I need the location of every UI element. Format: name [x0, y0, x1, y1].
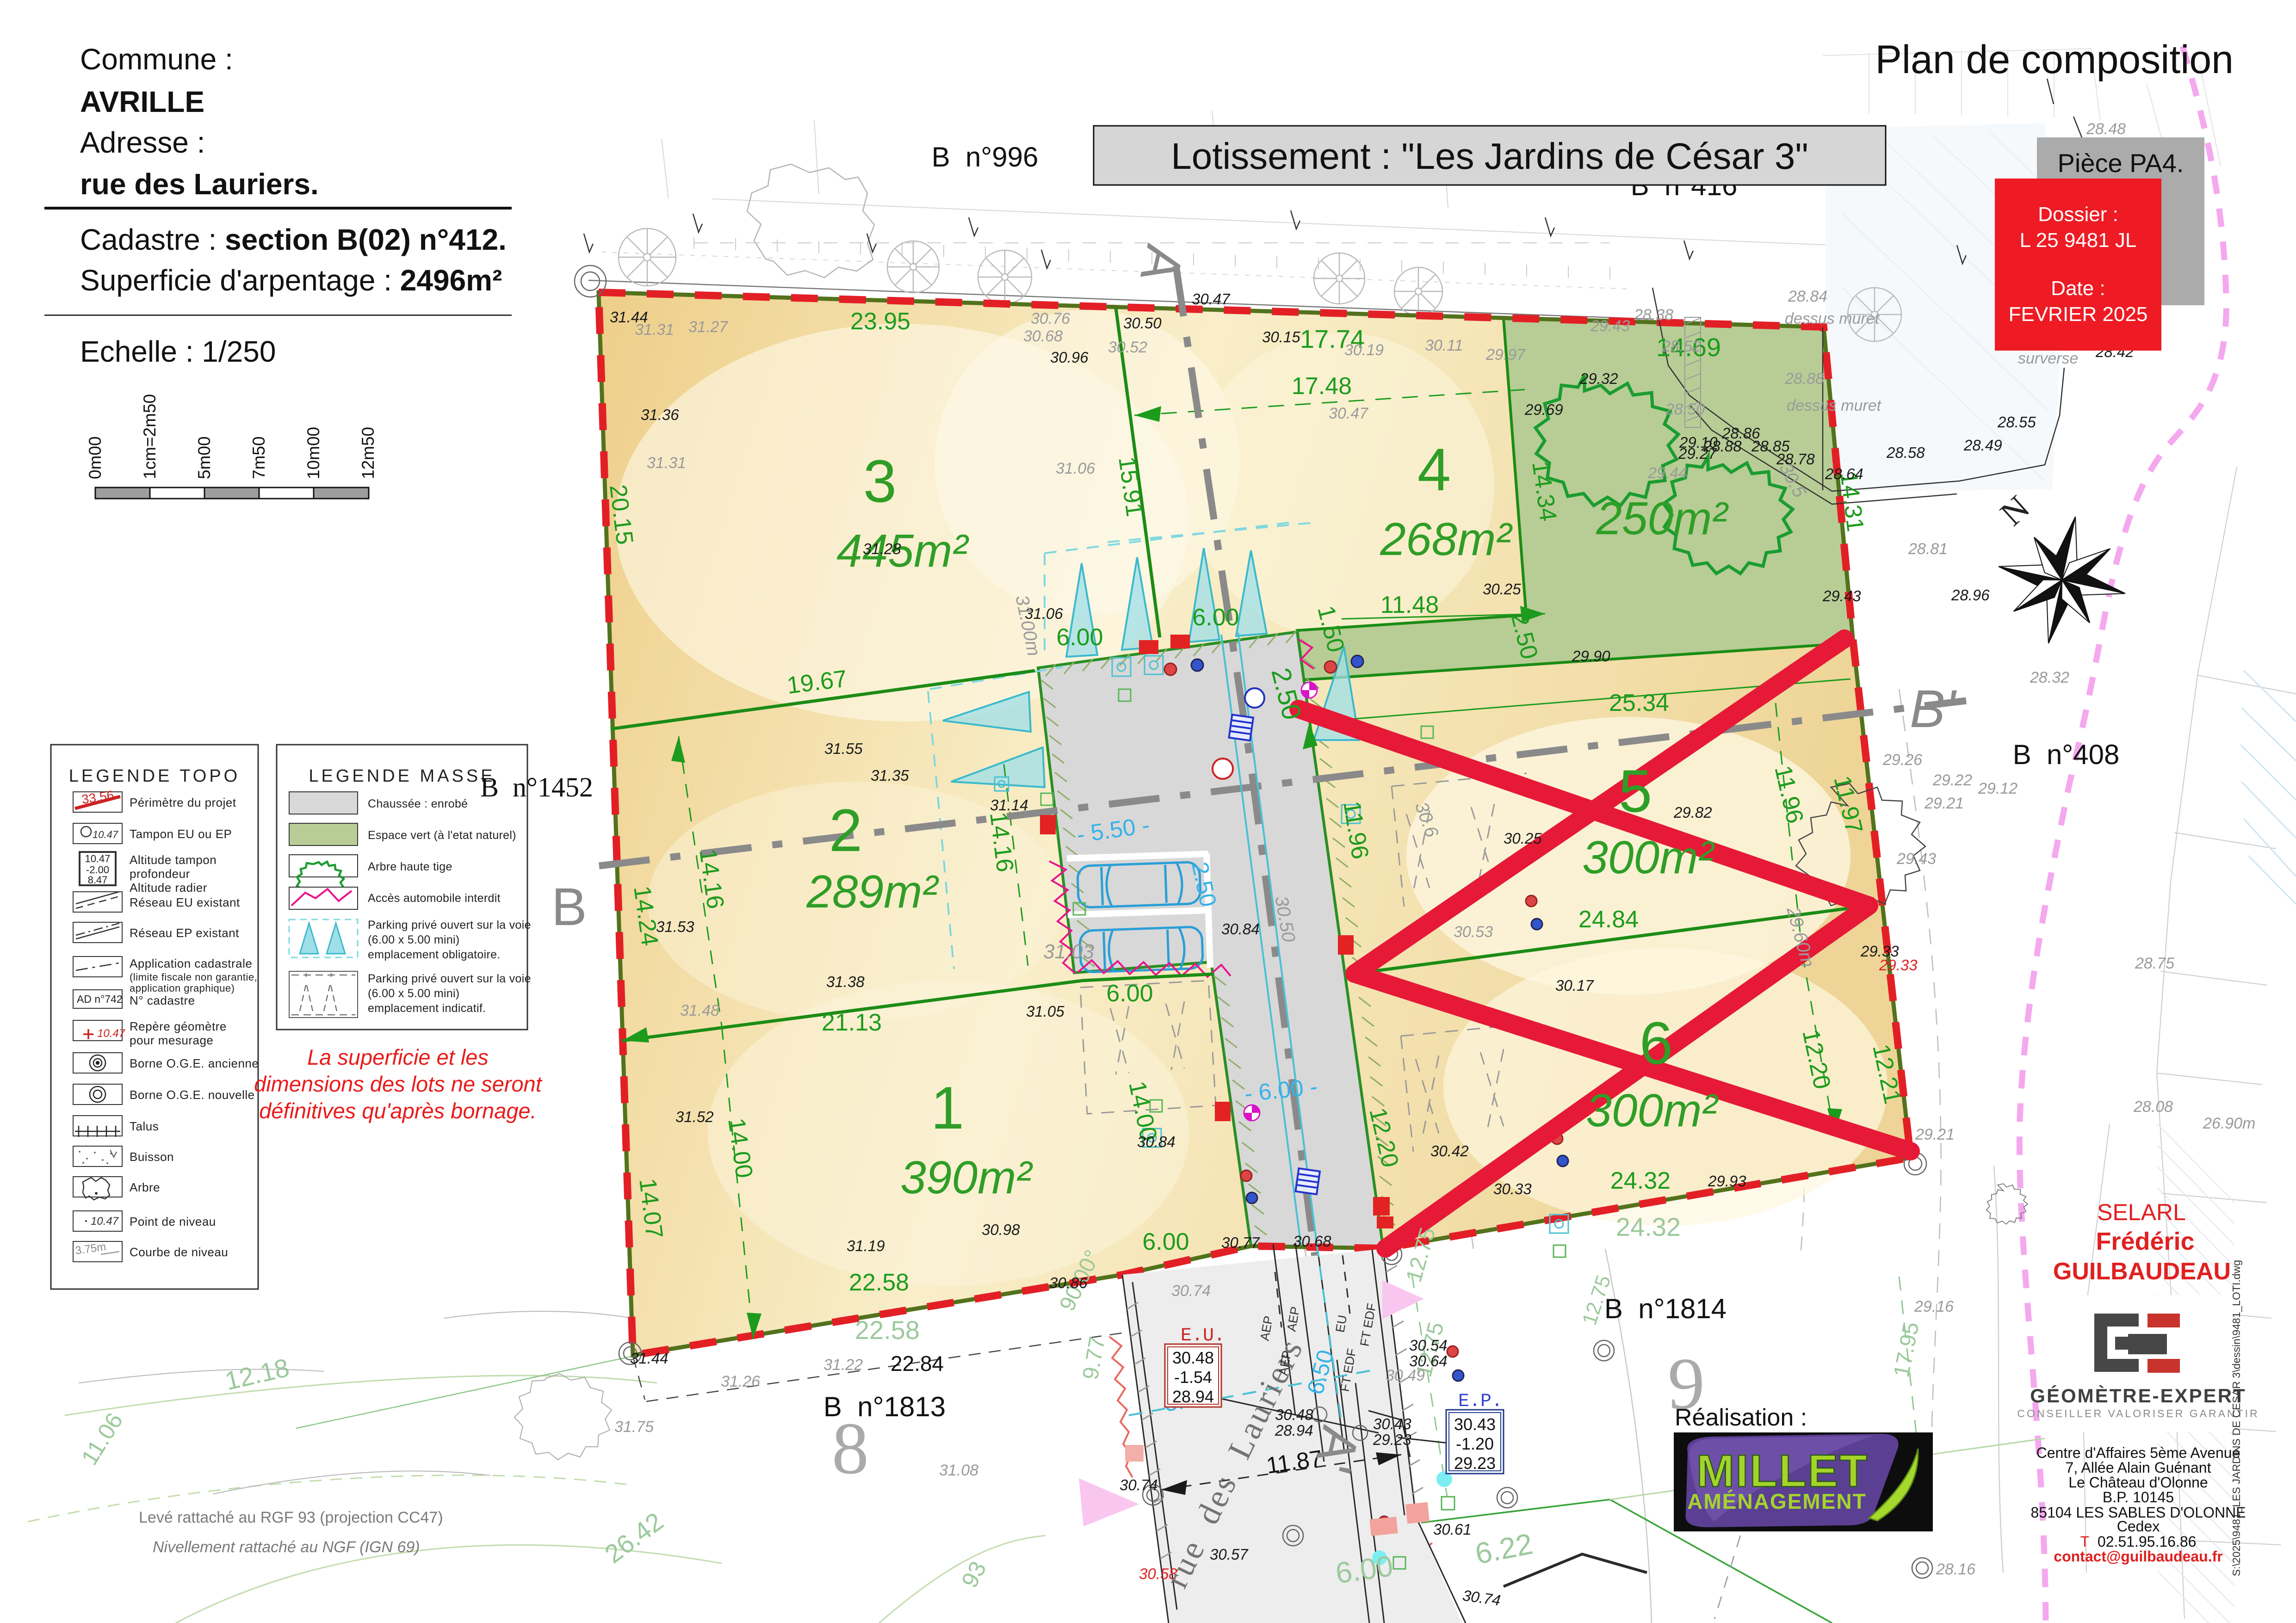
svg-text:31.06: 31.06 — [1056, 460, 1095, 477]
svg-text:AVRILLE: AVRILLE — [80, 85, 204, 118]
svg-text:application graphique): application graphique) — [130, 982, 235, 994]
svg-text:GÉOMÈTRE-EXPERT: GÉOMÈTRE-EXPERT — [2030, 1385, 2246, 1407]
svg-text:25.34: 25.34 — [1609, 690, 1669, 716]
svg-text:30.42: 30.42 — [1430, 1142, 1469, 1160]
svg-text:Périmètre du projet: Périmètre du projet — [130, 796, 236, 809]
svg-text:28.84: 28.84 — [1788, 288, 1827, 305]
svg-text:29.44: 29.44 — [1647, 464, 1687, 482]
svg-text:26.90m: 26.90m — [2203, 1115, 2255, 1132]
svg-text:1cm=2m50: 1cm=2m50 — [140, 394, 159, 479]
svg-text:31.48: 31.48 — [680, 1002, 719, 1019]
svg-text:29.21: 29.21 — [1915, 1126, 1955, 1143]
svg-text:30.77: 30.77 — [1221, 1234, 1260, 1251]
svg-text:AD n°742: AD n°742 — [77, 993, 123, 1005]
svg-text:dimensions des lots ne seront: dimensions des lots ne seront — [254, 1072, 543, 1096]
svg-text:(6.00 x 5.00 mini): (6.00 x 5.00 mini) — [368, 987, 460, 1000]
svg-text:Talus: Talus — [130, 1119, 159, 1133]
svg-text:28.81: 28.81 — [1908, 540, 1948, 558]
svg-text:31.52: 31.52 — [675, 1108, 714, 1125]
svg-text:268m²: 268m² — [1380, 513, 1513, 565]
svg-text:29.93: 29.93 — [1708, 1173, 1746, 1190]
svg-text:AMÉNAGEMENT: AMÉNAGEMENT — [1687, 1489, 1866, 1513]
svg-text:29.23: 29.23 — [1373, 1431, 1411, 1448]
svg-text:10.47: 10.47 — [91, 1215, 119, 1228]
svg-text:FEVRIER 2025: FEVRIER 2025 — [2009, 303, 2148, 326]
svg-text:31.35: 31.35 — [871, 767, 909, 784]
svg-text:Pièce PA4.: Pièce PA4. — [2058, 148, 2184, 178]
svg-text:17.48: 17.48 — [1292, 373, 1352, 400]
svg-text:Point de niveau: Point de niveau — [130, 1215, 216, 1228]
svg-text:30.19: 30.19 — [1344, 341, 1384, 359]
svg-text:Tampon EU ou EP: Tampon EU ou EP — [130, 827, 232, 841]
svg-text:30.52: 30.52 — [1108, 339, 1147, 356]
svg-text:28.58: 28.58 — [1886, 444, 1925, 461]
svg-text:29.69: 29.69 — [1524, 401, 1563, 418]
svg-text:30.50: 30.50 — [1123, 315, 1162, 332]
svg-text:Altitude radier: Altitude radier — [130, 881, 207, 895]
svg-text:31.53: 31.53 — [656, 918, 694, 935]
svg-text:28.48: 28.48 — [2086, 120, 2126, 138]
svg-text:B': B' — [1910, 679, 1957, 739]
svg-text:390m²: 390m² — [900, 1152, 1033, 1203]
svg-text:30.25: 30.25 — [1483, 580, 1521, 598]
svg-text:8.47: 8.47 — [88, 874, 108, 886]
svg-text:29.43: 29.43 — [1822, 587, 1861, 605]
svg-text:289m²: 289m² — [806, 866, 939, 918]
svg-text:28.55: 28.55 — [1997, 413, 2036, 431]
svg-text:Cadastre : section B(02) n°412: Cadastre : section B(02) n°412. — [80, 223, 507, 256]
svg-text:31.03: 31.03 — [1043, 940, 1095, 963]
svg-text:28.88: 28.88 — [1784, 370, 1824, 388]
svg-text:SELARL: SELARL — [2097, 1199, 2186, 1225]
svg-text:Application cadastrale: Application cadastrale — [130, 957, 252, 970]
svg-text:Parking privé ouvert sur la vo: Parking privé ouvert sur la voie — [368, 972, 531, 985]
svg-text:11.48: 11.48 — [1380, 592, 1439, 618]
svg-text:Arbre haute tige: Arbre haute tige — [368, 860, 452, 873]
svg-text:Dossier :: Dossier : — [2038, 203, 2118, 226]
svg-text:La superficie et les: La superficie et les — [307, 1045, 489, 1069]
svg-text:30.98: 30.98 — [982, 1221, 1020, 1238]
svg-text:GUILBAUDEAU: GUILBAUDEAU — [2053, 1258, 2231, 1285]
svg-text:Courbe de niveau: Courbe de niveau — [130, 1245, 228, 1259]
svg-text:24.32: 24.32 — [1616, 1212, 1681, 1241]
svg-text:29.21: 29.21 — [1924, 795, 1964, 812]
svg-text:31.05: 31.05 — [1026, 1003, 1064, 1020]
svg-text:30.25: 30.25 — [1504, 830, 1542, 847]
svg-text:22.58: 22.58 — [855, 1315, 920, 1345]
svg-text:Plan de composition: Plan de composition — [1875, 37, 2234, 82]
svg-text:6.00: 6.00 — [1142, 1228, 1189, 1255]
svg-text:31.27: 31.27 — [688, 318, 728, 336]
svg-text:T 02.51.95.16.86: T 02.51.95.16.86 — [2080, 1533, 2197, 1550]
svg-text:29.43: 29.43 — [1896, 850, 1936, 868]
svg-text:21.13: 21.13 — [822, 1009, 882, 1036]
svg-text:Altitude tampon: Altitude tampon — [130, 853, 217, 867]
svg-text:B.P. 10145: B.P. 10145 — [2103, 1489, 2174, 1506]
svg-text:22.84: 22.84 — [891, 1351, 944, 1376]
svg-text:Borne O.G.E. nouvelle: Borne O.G.E. nouvelle — [130, 1088, 255, 1102]
svg-text:30.15: 30.15 — [1262, 328, 1300, 346]
svg-text:30.84: 30.84 — [1137, 1133, 1176, 1150]
svg-text:29.90: 29.90 — [1572, 648, 1610, 665]
svg-text:30.17: 30.17 — [1555, 977, 1594, 994]
svg-text:Chaussée : enrobé: Chaussée : enrobé — [368, 797, 468, 810]
svg-text:30.54: 30.54 — [1409, 1337, 1448, 1354]
svg-text:Repère géomètre: Repère géomètre — [130, 1019, 227, 1033]
svg-text:4: 4 — [1417, 436, 1451, 503]
svg-text:Accès automobile interdit: Accès automobile interdit — [368, 892, 501, 905]
svg-text:30.68: 30.68 — [1023, 327, 1063, 345]
svg-text:8: 8 — [832, 1407, 869, 1489]
svg-text:contact@guilbaudeau.fr: contact@guilbaudeau.fr — [2054, 1548, 2222, 1565]
svg-text:E.P.: E.P. — [1458, 1391, 1503, 1412]
svg-text:31.75: 31.75 — [614, 1418, 654, 1436]
svg-text:30.43: 30.43 — [1454, 1415, 1496, 1434]
svg-text:30.61: 30.61 — [1433, 1521, 1472, 1538]
svg-text:-1.54: -1.54 — [1174, 1368, 1212, 1387]
svg-text:30.53: 30.53 — [1454, 923, 1493, 941]
svg-text:30.76: 30.76 — [1031, 310, 1070, 327]
svg-text:Levé rattaché au RGF 93 (proje: Levé rattaché au RGF 93 (projection CC47… — [139, 1509, 443, 1526]
svg-text:31.14: 31.14 — [990, 796, 1028, 814]
svg-text:6.00: 6.00 — [1106, 980, 1153, 1007]
svg-text:Arbre: Arbre — [130, 1180, 160, 1194]
svg-text:(limite fiscale non garantie,: (limite fiscale non garantie, — [130, 971, 257, 983]
svg-text:30.11: 30.11 — [1425, 337, 1463, 354]
svg-text:Réseau EP existant: Réseau EP existant — [130, 926, 239, 940]
svg-text:emplacement indicatif.: emplacement indicatif. — [368, 1002, 486, 1015]
svg-text:445m²: 445m² — [836, 525, 969, 577]
svg-text:28.75: 28.75 — [2135, 955, 2174, 972]
svg-text:29.27: 29.27 — [1678, 445, 1717, 462]
svg-text:30.96: 30.96 — [1050, 349, 1089, 366]
svg-text:28.85: 28.85 — [1751, 438, 1790, 455]
svg-text:6.00: 6.00 — [1056, 624, 1103, 651]
svg-text:23.95: 23.95 — [850, 308, 910, 335]
svg-text:S:\2025\9481_LES JARDINS DE CE: S:\2025\9481_LES JARDINS DE CESAR 3\dess… — [2230, 1260, 2242, 1576]
svg-text:Lotissement : "Les Jardins de: Lotissement : "Les Jardins de César 3" — [1171, 136, 1808, 177]
svg-text:28.16: 28.16 — [1936, 1561, 1975, 1578]
svg-text:29.33: 29.33 — [1879, 957, 1918, 974]
svg-text:12m50: 12m50 — [359, 427, 378, 479]
svg-text:N° cadastre: N° cadastre — [130, 994, 195, 1007]
svg-text:Date :: Date : — [2051, 277, 2105, 300]
svg-text:Adresse :: Adresse : — [80, 126, 205, 159]
svg-text:E.U.: E.U. — [1181, 1326, 1225, 1346]
svg-text:28.64: 28.64 — [1825, 465, 1863, 482]
svg-text:30.47: 30.47 — [1192, 290, 1231, 308]
svg-text:EU: EU — [1333, 1314, 1349, 1333]
svg-text:31.22: 31.22 — [823, 1356, 863, 1374]
svg-text:22.58: 22.58 — [849, 1269, 909, 1296]
svg-text:B n°408: B n°408 — [2013, 739, 2120, 770]
svg-text:10.47: 10.47 — [93, 829, 118, 840]
svg-text:29.26: 29.26 — [1882, 751, 1922, 769]
svg-text:B n°1814: B n°1814 — [1604, 1293, 1727, 1324]
svg-text:31.19: 31.19 — [847, 1237, 885, 1254]
svg-text:2: 2 — [829, 796, 862, 864]
svg-text:300m²: 300m² — [1586, 1085, 1719, 1136]
svg-text:Buisson: Buisson — [130, 1150, 174, 1164]
svg-text:Parking privé ouvert sur la vo: Parking privé ouvert sur la voie — [368, 919, 531, 932]
svg-text:29.22: 29.22 — [1932, 771, 1972, 789]
svg-text:Superficie d'arpentage : 2496m: Superficie d'arpentage : 2496m² — [80, 264, 502, 297]
svg-text:29.16: 29.16 — [1914, 1298, 1954, 1315]
svg-text:Borne O.G.E. ancienne: Borne O.G.E. ancienne — [130, 1056, 259, 1070]
svg-text:7, Allée Alain Guénant: 7, Allée Alain Guénant — [2066, 1459, 2211, 1476]
svg-text:30.49: 30.49 — [1386, 1367, 1425, 1384]
svg-text:dessus muret: dessus muret — [1785, 310, 1880, 327]
svg-text:Centre d'Affaires 5ème Avenue: Centre d'Affaires 5ème Avenue — [2036, 1444, 2240, 1461]
svg-text:10.47: 10.47 — [97, 1027, 126, 1040]
svg-text:Réalisation :: Réalisation : — [1675, 1404, 1807, 1431]
svg-text:B: B — [551, 877, 587, 937]
svg-text:10m00: 10m00 — [304, 427, 323, 479]
svg-text:Espace vert (à l'etat naturel): Espace vert (à l'etat naturel) — [368, 829, 516, 842]
svg-text:dessus muret: dessus muret — [1787, 397, 1882, 414]
svg-text:B n°1452: B n°1452 — [480, 772, 593, 802]
svg-text:10.47: 10.47 — [85, 853, 110, 864]
svg-text:Echelle : 1/250: Echelle : 1/250 — [80, 335, 276, 368]
svg-text:29.23: 29.23 — [1454, 1454, 1496, 1473]
svg-text:250m²: 250m² — [1596, 493, 1729, 544]
svg-text:28.32: 28.32 — [2030, 669, 2069, 686]
svg-text:6.00: 6.00 — [1192, 604, 1239, 631]
svg-text:6: 6 — [1640, 1009, 1673, 1077]
svg-text:surverse: surverse — [2018, 350, 2078, 367]
svg-text:définitives qu'après bornage.: définitives qu'après bornage. — [259, 1098, 536, 1123]
svg-text:LEGENDE MASSE: LEGENDE MASSE — [309, 766, 495, 786]
svg-text:Le Château d'Olonne: Le Château d'Olonne — [2068, 1474, 2208, 1491]
svg-text:29.32: 29.32 — [1579, 370, 1618, 387]
svg-text:pour mesurage: pour mesurage — [130, 1033, 213, 1047]
svg-text:Nivellement rattaché au NGF (I: Nivellement rattaché au NGF (IGN 69) — [153, 1538, 420, 1556]
svg-text:28.52: 28.52 — [1661, 338, 1701, 355]
svg-text:29.97: 29.97 — [1485, 346, 1526, 364]
svg-text:30.47: 30.47 — [1329, 405, 1368, 422]
svg-text:300m²: 300m² — [1582, 832, 1715, 883]
svg-text:Frédéric: Frédéric — [2096, 1228, 2194, 1255]
svg-text:30.68: 30.68 — [1293, 1233, 1331, 1250]
svg-text:-1.20: -1.20 — [1456, 1434, 1494, 1453]
svg-text:31.28: 31.28 — [863, 540, 901, 557]
svg-text:30.43: 30.43 — [1373, 1415, 1411, 1432]
svg-text:28.94: 28.94 — [1172, 1387, 1214, 1406]
svg-text:7m50: 7m50 — [249, 436, 268, 479]
svg-text:LEGENDE TOPO: LEGENDE TOPO — [69, 766, 240, 786]
svg-text:29.12: 29.12 — [1978, 780, 2018, 797]
svg-text:31.36: 31.36 — [641, 406, 679, 423]
svg-text:31.31: 31.31 — [635, 321, 674, 339]
svg-text:30.33: 30.33 — [1493, 1180, 1532, 1197]
svg-text:0m00: 0m00 — [86, 436, 105, 479]
svg-text:31.26: 31.26 — [721, 1373, 760, 1390]
svg-text:29.43: 29.43 — [1590, 317, 1630, 335]
svg-text:30.57: 30.57 — [1210, 1546, 1249, 1563]
svg-text:31.55: 31.55 — [824, 740, 863, 757]
svg-text:rue des Lauriers.: rue des Lauriers. — [80, 167, 319, 201]
svg-text:28.94: 28.94 — [1275, 1422, 1313, 1439]
svg-text:28.08: 28.08 — [2133, 1098, 2173, 1116]
svg-text:5: 5 — [1619, 757, 1652, 825]
svg-text:L 25 9481 JL: L 25 9481 JL — [2020, 229, 2137, 252]
svg-text:B n°996: B n°996 — [932, 142, 1039, 173]
svg-text:Réseau EU existant: Réseau EU existant — [130, 895, 240, 909]
svg-text:24.32: 24.32 — [1610, 1167, 1671, 1194]
svg-text:Commune :: Commune : — [80, 43, 233, 76]
svg-text:Cedex: Cedex — [2117, 1518, 2160, 1535]
svg-text:30.74: 30.74 — [1120, 1476, 1158, 1493]
svg-text:31.38: 31.38 — [826, 973, 865, 990]
svg-text:CONSEILLER VALORISER GARANTIR: CONSEILLER VALORISER GARANTIR — [2017, 1407, 2259, 1419]
svg-text:30.48: 30.48 — [1172, 1348, 1214, 1367]
svg-text:31.31: 31.31 — [647, 454, 686, 472]
svg-text:(6.00 x 5.00 mini): (6.00 x 5.00 mini) — [368, 933, 460, 946]
svg-text:3: 3 — [863, 447, 897, 515]
svg-text:30.86: 30.86 — [1049, 1274, 1088, 1291]
svg-text:MILLET: MILLET — [1696, 1445, 1869, 1496]
svg-text:30.74: 30.74 — [1171, 1282, 1211, 1300]
svg-text:5m00: 5m00 — [195, 436, 214, 479]
svg-text:profondeur: profondeur — [130, 867, 190, 881]
svg-text:30.84: 30.84 — [1221, 920, 1260, 938]
svg-text:emplacement obligatoire.: emplacement obligatoire. — [368, 948, 501, 961]
svg-text:31.44: 31.44 — [630, 1350, 668, 1367]
svg-text:28.96: 28.96 — [1951, 586, 1990, 604]
svg-text:28.38: 28.38 — [1634, 306, 1673, 324]
svg-text:24.84: 24.84 — [1578, 906, 1639, 933]
svg-text:28.49: 28.49 — [1963, 437, 2002, 454]
svg-text:28.50: 28.50 — [1665, 401, 1705, 418]
svg-text:31.08: 31.08 — [939, 1462, 978, 1479]
svg-text:29.82: 29.82 — [1673, 804, 1712, 821]
svg-text:1: 1 — [931, 1074, 964, 1142]
